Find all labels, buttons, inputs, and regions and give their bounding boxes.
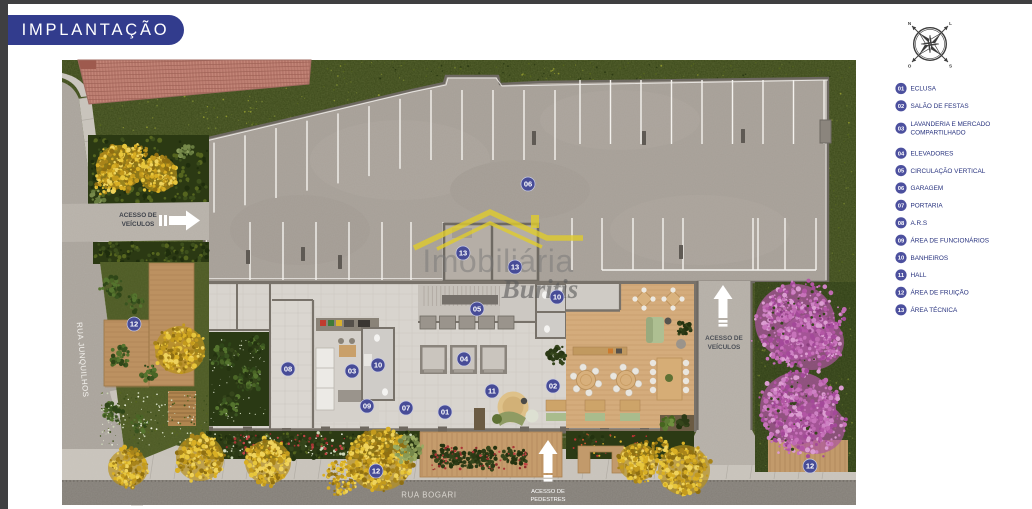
svg-text:VEÍCULOS: VEÍCULOS: [708, 342, 741, 351]
svg-text:ACESSO DE: ACESSO DE: [119, 212, 157, 219]
svg-text:VEÍCULOS: VEÍCULOS: [122, 219, 155, 228]
svg-text:ACESSO DE: ACESSO DE: [705, 335, 743, 342]
